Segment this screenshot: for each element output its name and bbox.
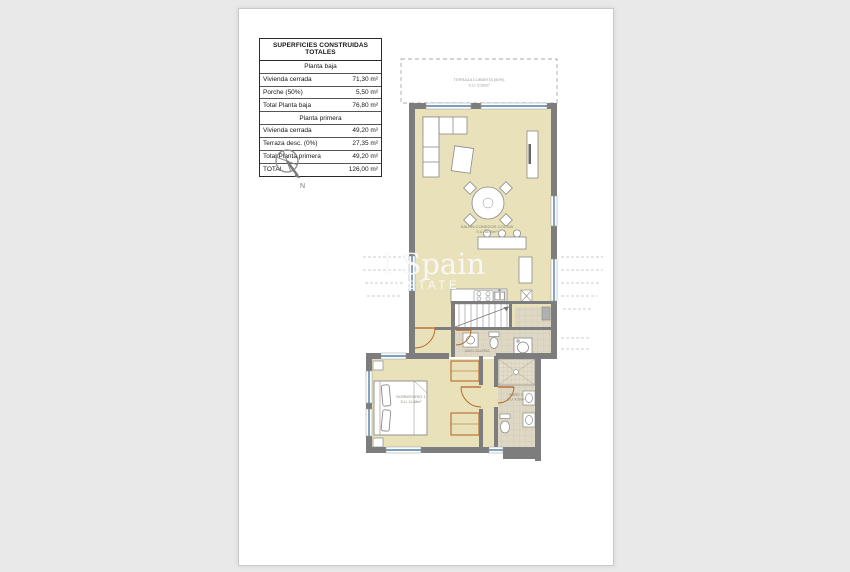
tv-unit [527, 131, 538, 178]
window [551, 196, 557, 226]
dormitorio-area-label: S.U. 11,88m² [401, 400, 423, 404]
terrace-area-label: S.U. 5,50m² [468, 83, 490, 88]
row-label: Planta primera [299, 115, 341, 122]
fridge [519, 257, 532, 283]
window [381, 353, 406, 359]
window [489, 447, 503, 453]
window [426, 103, 471, 109]
window [481, 103, 547, 109]
row-label: Vivienda cerrada [263, 76, 312, 83]
floor-plan: TERRAZA CUBIERTA (50%) S.U. 5,50m² [351, 51, 616, 471]
bath-sink [523, 413, 535, 427]
nightstand [373, 361, 383, 370]
salon-area-label: S.U. 36,29m² [476, 230, 498, 234]
small-appliance [521, 290, 532, 302]
window [366, 409, 372, 436]
kitchen-sink [494, 290, 505, 301]
terrace-outline: TERRAZA CUBIERTA (50%) S.U. 5,50m² [401, 59, 557, 103]
window [386, 447, 421, 453]
window [551, 259, 557, 301]
row-label: Porche (50%) [263, 89, 303, 96]
salon-label: SALÓN-COMEDOR-COCINA [461, 224, 514, 229]
dormitorio-label: DORMITORIO 1 [396, 394, 426, 399]
boiler [542, 307, 550, 320]
plan-sheet: SUPERFICIES CONSTRUIDAS TOTALES Planta b… [238, 8, 614, 566]
stairs [453, 304, 511, 329]
row-label: Planta baja [304, 63, 337, 70]
row-label: Total Planta baja [263, 102, 311, 109]
window [366, 371, 372, 403]
shower [498, 359, 535, 385]
bath-sink [523, 391, 535, 405]
nightstand [373, 438, 383, 447]
coffee-table [451, 146, 473, 173]
aseo-label: ASEO-GALERÍA [465, 349, 490, 353]
bano-area-label: S.U. 4,50m² [507, 398, 525, 402]
bano-label: BAÑO 1 [509, 392, 522, 397]
bed [374, 381, 427, 435]
row-label: Vivienda cerrada [263, 127, 312, 134]
compass-north-label: N [300, 183, 305, 190]
bath-toilet [500, 414, 510, 433]
compass-icon: N [267, 143, 313, 195]
window [409, 256, 415, 291]
aseo-toilet [489, 332, 499, 349]
terrace-label: TERRAZA CUBIERTA (50%) [454, 77, 506, 82]
